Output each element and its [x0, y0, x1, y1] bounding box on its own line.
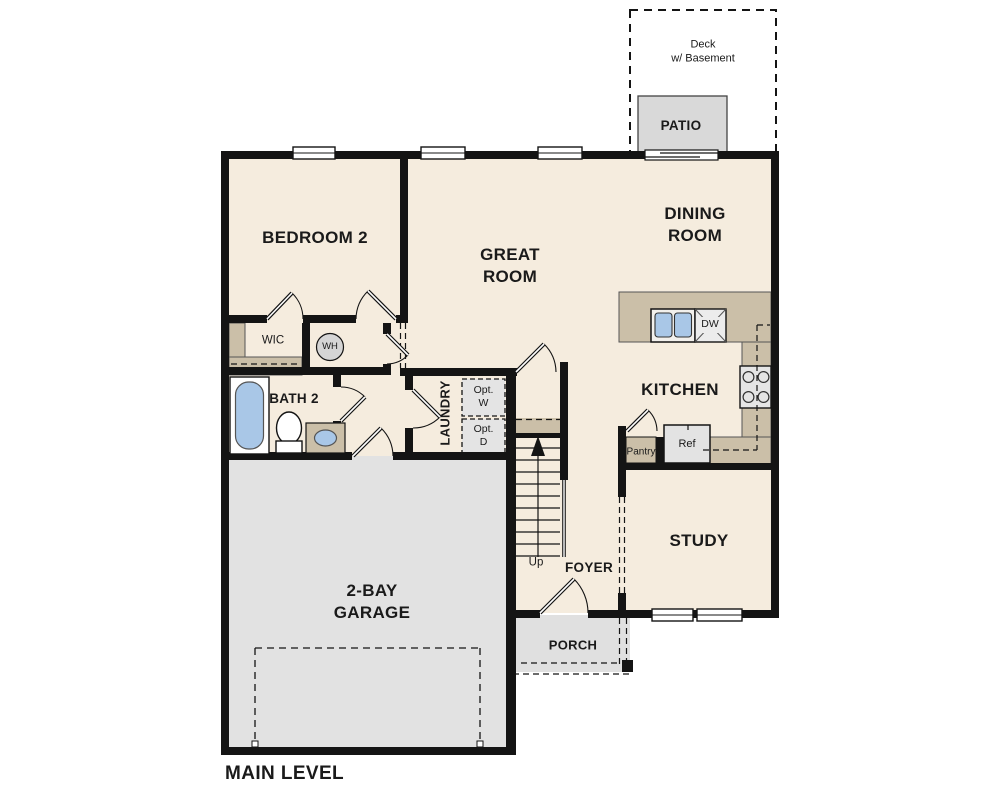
- stove: [740, 366, 771, 408]
- bath-sink: [306, 423, 345, 453]
- window-study-1: [652, 609, 693, 621]
- kitchen-sink: [651, 309, 695, 342]
- window-great-room-1: [421, 147, 465, 159]
- floorplan-canvas: Deck w/ Basement PATIO BEDROOM 2 GREAT R…: [0, 0, 1000, 800]
- water-heater-circle: [317, 334, 344, 361]
- sliding-door-dining: [645, 150, 718, 160]
- dishwasher: [695, 309, 726, 342]
- window-great-room-2: [538, 147, 582, 159]
- toilet: [276, 412, 302, 453]
- floorplan-drawing: [0, 0, 1000, 800]
- porch-post: [622, 660, 633, 672]
- window-study-2: [697, 609, 742, 621]
- refrigerator: [664, 425, 710, 463]
- patio-area: [638, 96, 727, 155]
- stair-landing: [516, 418, 560, 433]
- window-bedroom2: [293, 147, 335, 159]
- bathtub: [230, 377, 269, 454]
